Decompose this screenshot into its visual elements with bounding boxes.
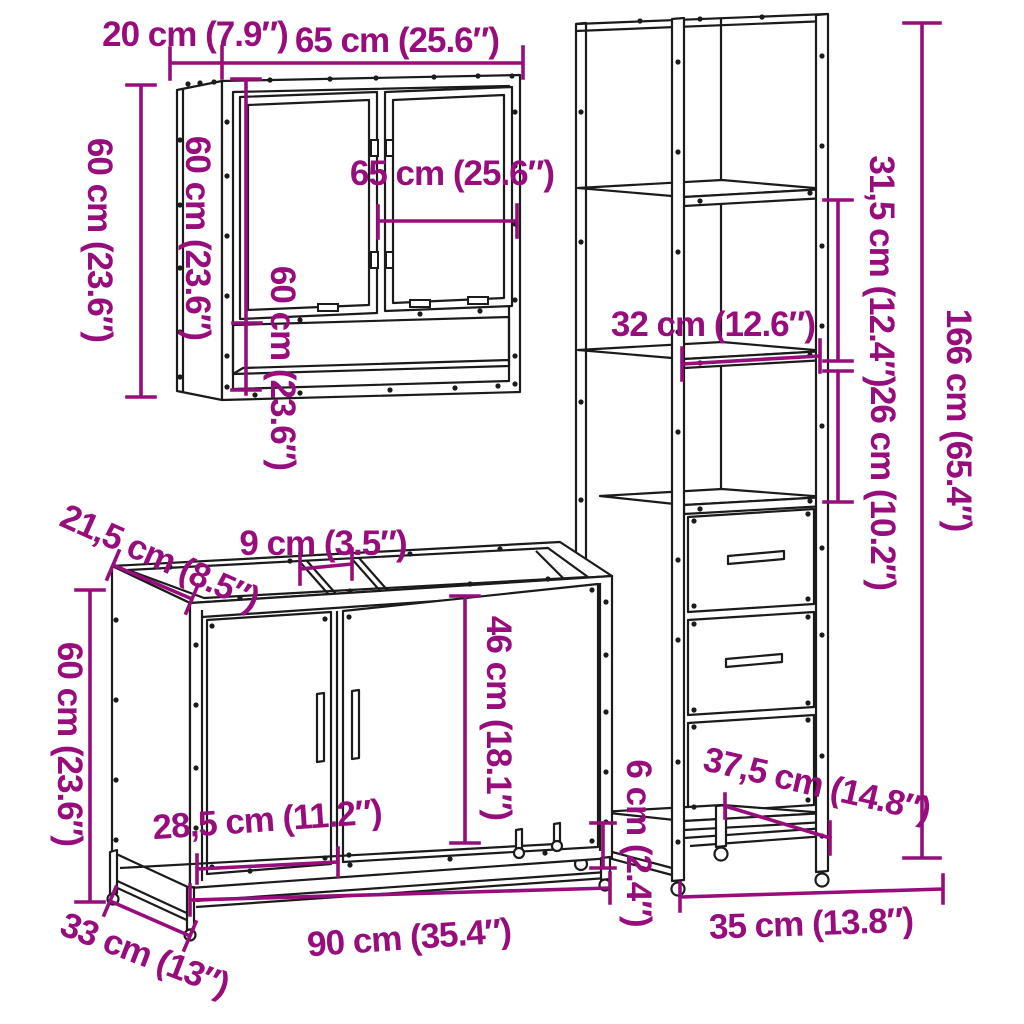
vanity-right-door-handle [352,690,359,759]
mirror-door-catch [468,297,488,304]
tall-foot [816,874,829,887]
vanity-top-gap-label: 9 cm (3.5″) [239,524,406,563]
mirror-door-catch [318,304,338,311]
tall-front-right-post [816,14,828,872]
tall-foot [715,848,728,861]
tall-shelf-width-label: 32 cm (12.6″) [611,305,815,344]
vanity-back-leg [516,829,522,849]
dim-tall-height-line [904,23,940,858]
mirror-height-inner-label: 60 cm (23.6″) [263,266,302,470]
mirror-right-door [385,87,512,311]
vanity-drawing [108,542,613,941]
tall-width-label: 35 cm (13.8″) [708,901,913,947]
mirror-hinge [386,252,393,268]
tall-lower-shelf-gap-label: 26 cm (10.2″) [863,386,902,590]
mirror-width-label: 65 cm (25.6″) [295,21,499,60]
tall-upper-shelf-gap-label: 31,5 cm (12.4″) [862,155,901,386]
tall-top-rail [576,14,828,31]
tall-foot [672,883,685,896]
mirror-left-door [240,92,377,319]
diagram-canvas: 20 cm (7.9″) 65 cm (25.6″) 60 cm (23.6″)… [0,0,1024,1024]
dim-mirror-height-outer-line [127,85,155,397]
mirror-door-catch [410,300,430,307]
vanity-width-label: 90 cm (35.4″) [306,911,512,964]
vanity-back-leg [554,823,560,842]
vanity-left-door-handle [317,693,324,762]
vanity-foot [552,841,562,851]
mirror-height-label: 60 cm (23.6″) [80,138,119,342]
mirror-width-inner-label: 65 cm (25.6″) [350,154,554,193]
furniture-dimension-diagram: 20 cm (7.9″) 65 cm (25.6″) 60 cm (23.6″)… [0,0,1024,1024]
tall-height-label: 166 cm (65.4″) [939,309,978,532]
tall-ground-clearance-label: 6 cm (2.4″) [619,759,658,926]
tall-front-left-post [672,18,684,881]
mirror-depth-label: 20 cm (7.9″) [102,15,288,54]
vanity-height-label: 60 cm (23.6″) [50,642,89,846]
mirror-hinge [371,252,378,268]
vanity-foot [514,848,524,858]
mirror-cabinet-drawing [177,73,520,400]
vanity-base-depth-label: 33 cm (13″) [55,905,234,1005]
vanity-door-height-label: 46 cm (18.1″) [479,616,518,820]
mirror-height-side-label: 60 cm (23.6″) [178,136,217,340]
